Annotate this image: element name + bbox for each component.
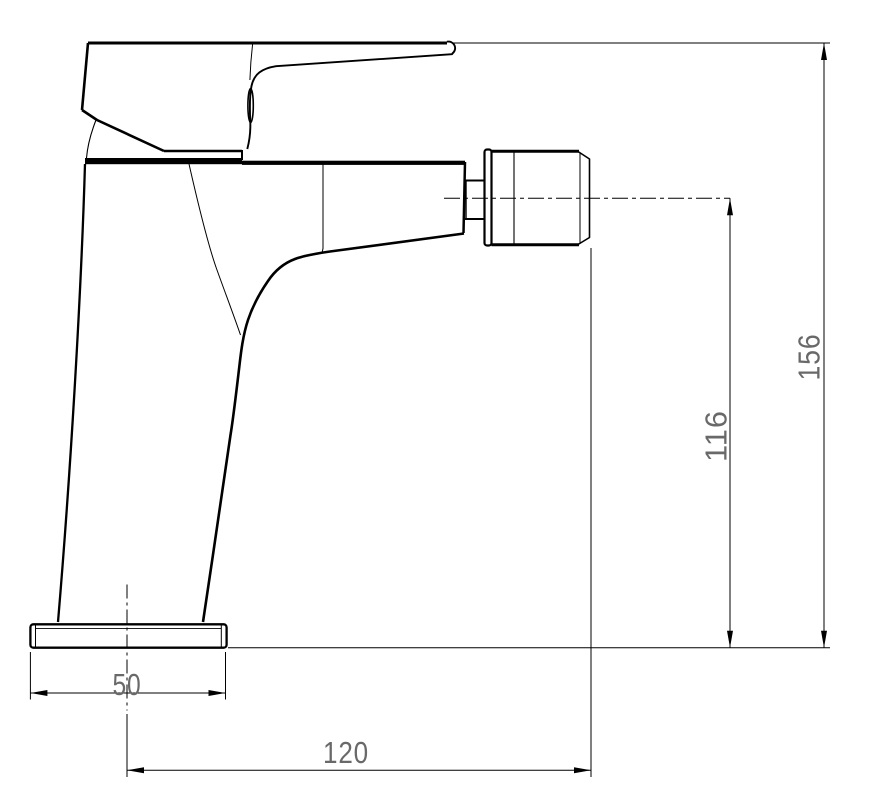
- block-left-edge: [82, 43, 88, 110]
- spout-end-face: [464, 162, 466, 233]
- dim-spout-height-value: 116: [699, 410, 734, 462]
- body-highlight-curve: [189, 164, 241, 335]
- base-plate-outline: [30, 624, 226, 647]
- dimensions: [30, 43, 830, 777]
- aerator-flange: [485, 150, 492, 246]
- base-plate: [30, 624, 226, 647]
- spout-top-edge: [242, 161, 465, 165]
- drawing-svg: 50 120 116 156: [0, 0, 891, 795]
- lever-tip-and-underside: [247, 42, 455, 149]
- dim-spout-reach-value: 120: [323, 735, 369, 770]
- dim-arrow-up: [727, 198, 733, 215]
- lever-handle: [88, 42, 455, 149]
- dim-arrow-down: [727, 631, 733, 648]
- dim-arrow-right: [574, 767, 591, 773]
- body-right-edge-and-spout-underside: [203, 234, 464, 623]
- block-skirt-curve: [87, 120, 97, 158]
- dim-spout-reach: [127, 248, 591, 777]
- dim-arrow-left: [127, 767, 144, 773]
- dim-arrow-right: [209, 690, 226, 696]
- technical-drawing: 50 120 116 156: [0, 0, 891, 795]
- aerator-assembly: [465, 150, 590, 246]
- dim-arrow-left: [30, 690, 47, 696]
- handle-block: [82, 43, 242, 160]
- body-left-edge: [58, 164, 85, 622]
- spout-inner-edge: [322, 164, 323, 253]
- dim-arrow-up: [821, 43, 827, 60]
- faucet-outline: [30, 42, 730, 711]
- mounting-band: [85, 158, 242, 164]
- lever-neck-back-line: [250, 44, 253, 80]
- dim-total-height-value: 156: [792, 334, 827, 381]
- dim-base-width-value: 50: [113, 667, 142, 702]
- faucet-body: [58, 162, 465, 622]
- block-front-diagonal: [82, 110, 164, 151]
- dim-arrow-down: [821, 631, 827, 648]
